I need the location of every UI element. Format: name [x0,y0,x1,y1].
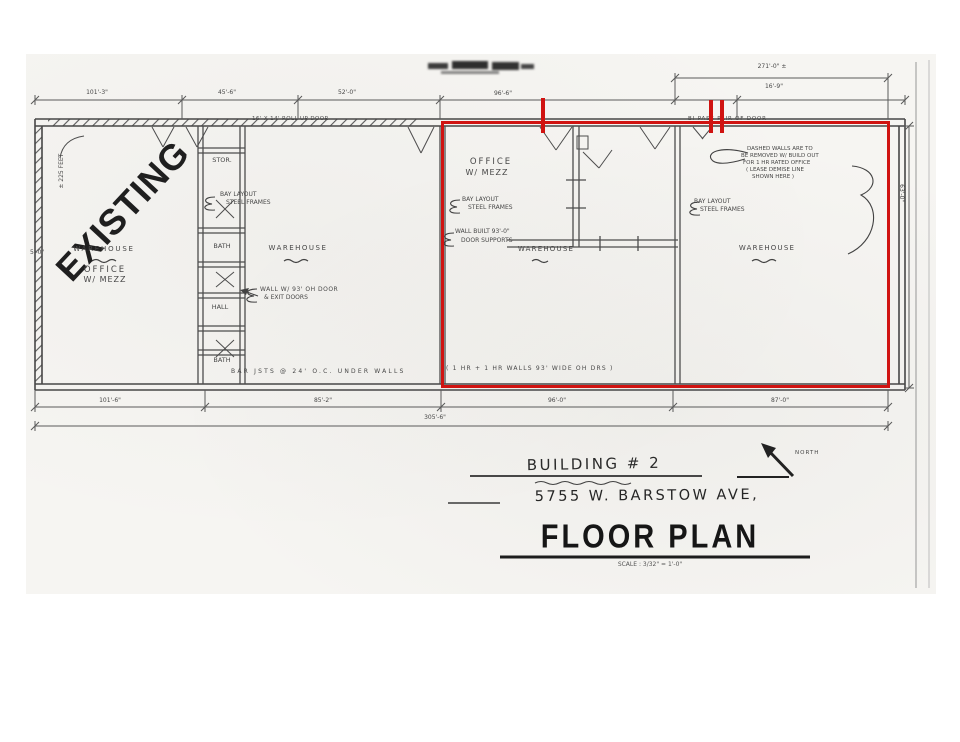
dim-bottom-3: 96'-0" [527,398,587,404]
note-bay-layout-3-line1: BAY LAYOUT [462,197,532,203]
room-label-warehouse-2: WAREHOUSE [254,245,342,252]
room-label-warehouse-1: WAREHOUSE [58,246,150,253]
note-left-height: ± 225 FEET [59,129,65,213]
note-dashed-walls-line5: SHOWN HERE ) [752,175,847,181]
note-one-hr-walls: ( 1 HR + 1 HR WALLS 93' WIDE OH DRS ) [446,366,654,372]
floor-plan-scan: EXISTING WAREHOUSE OFFICE W/ MEZZ STOR. … [0,0,960,742]
note-wall-built-line2: DOOR SUPPORTS [461,238,561,244]
north-label: NORTH [795,451,837,457]
note-dashed-walls-line1: DASHED WALLS ARE TO [747,147,855,153]
note-left-small-dim: 5'-0" [30,250,60,256]
title-address: 5755 W. BARSTOW AVE, [502,488,792,506]
north-arrow [737,443,793,477]
scan-smudges [428,61,534,74]
room-label-office-1-line2: W/ MEZZ [62,276,148,284]
dim-bottom-2: 85'-2" [293,398,353,404]
interior-walls [198,126,680,384]
title-floor-plan: FLOOR PLAN [523,520,777,555]
dim-top-4: 96'-6" [473,91,533,97]
north-arrow-shaft [768,450,793,476]
dim-top-right-overall: 271'-0" ± [712,64,832,70]
note-bay-layout-3-line2: STEEL FRAMES [468,205,542,211]
note-bar-joists: BAR JSTS @ 24' O.C. UNDER WALLS [231,369,443,375]
title-scale: SCALE : 3/32" = 1'-0" [590,562,710,568]
room-label-hall: HALL [198,304,242,311]
note-wall-oh-door-line1: WALL W/ 93' OH DOOR [260,287,380,293]
note-bay-layout-2-line1: BAY LAYOUT [220,192,290,198]
note-bi-pass-door: BI-PASS PAIR OF DOOR [688,117,798,123]
room-label-warehouse-3: WAREHOUSE [506,246,586,253]
note-wall-built-line1: WALL BUILT 93'-0" [455,229,567,235]
room-label-warehouse-4: WAREHOUSE [724,245,810,252]
note-dashed-walls-line2: BE REMOVED W/ BUILD OUT [741,154,863,160]
dim-bottom-overall: 305'-6" [404,415,466,421]
dim-bottom-4: 87'-0" [750,398,810,404]
note-wall-oh-door-line2: & EXIT DOORS [264,295,374,301]
note-dashed-walls-line4: ( LEASE DEMISE LINE [746,168,858,174]
dim-top-right-segment: 16'-9" [748,84,800,90]
dim-bottom-1: 101'-6" [80,398,140,404]
note-bay-layout-4-line2: STEEL FRAMES [700,207,774,213]
dim-top-2: 45'-6" [197,90,257,96]
room-label-office-2-line2: W/ MEZZ [454,169,520,177]
scanned-floor-plan-page: EXISTING WAREHOUSE OFFICE W/ MEZZ STOR. … [0,0,960,742]
note-bay-layout-4-line1: BAY LAYOUT [694,199,764,205]
note-dashed-walls-line3: FOR 1 HR RATED OFFICE [743,161,861,167]
room-label-office-1-line1: OFFICE [62,266,148,275]
note-bay-layout-2-line2: STEEL FRAMES [226,200,300,206]
dim-top-1: 101'-3" [67,90,127,96]
title-building: BUILDING # 2 [518,456,670,475]
dim-top-3: 52'-0" [317,90,377,96]
room-label-stor: STOR. [202,157,242,164]
room-label-bath-bottom: BATH [202,357,242,364]
room-label-office-2-line1: OFFICE [458,158,524,167]
dim-right-height: 63'-0" [898,170,904,216]
note-roll-up-door: 16' X 14' ROLL UP DOOR [252,117,352,123]
room-label-bath-top: BATH [202,243,242,250]
